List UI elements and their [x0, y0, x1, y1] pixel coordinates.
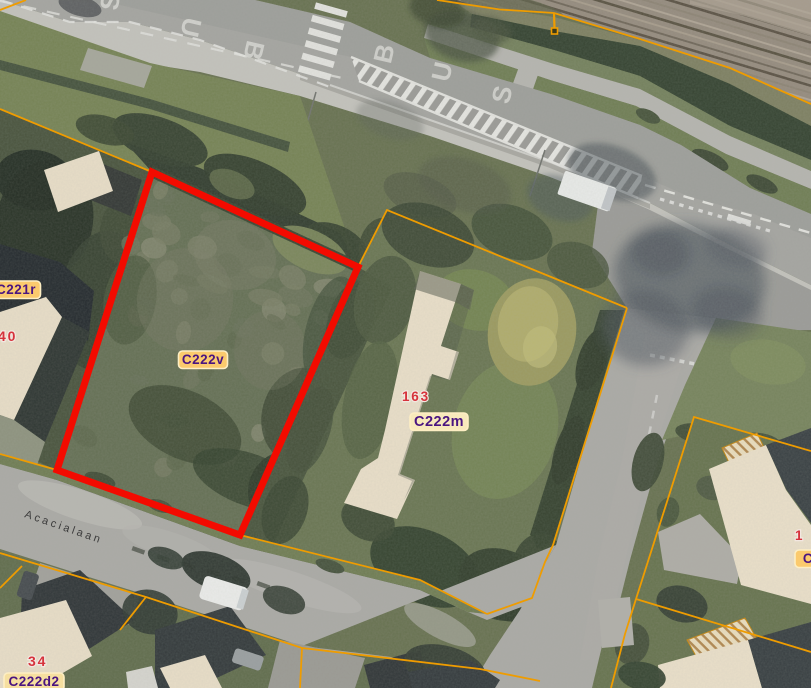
svg-text:34: 34 [28, 653, 47, 669]
svg-text:C222v: C222v [182, 352, 224, 367]
svg-text:1: 1 [795, 528, 804, 543]
svg-text:C221r: C221r [0, 282, 36, 297]
svg-text:163: 163 [402, 389, 430, 404]
svg-text:C2: C2 [803, 551, 811, 566]
svg-text:40: 40 [0, 328, 17, 344]
svg-text:C222d2: C222d2 [8, 674, 59, 688]
svg-text:C222m: C222m [414, 414, 464, 430]
